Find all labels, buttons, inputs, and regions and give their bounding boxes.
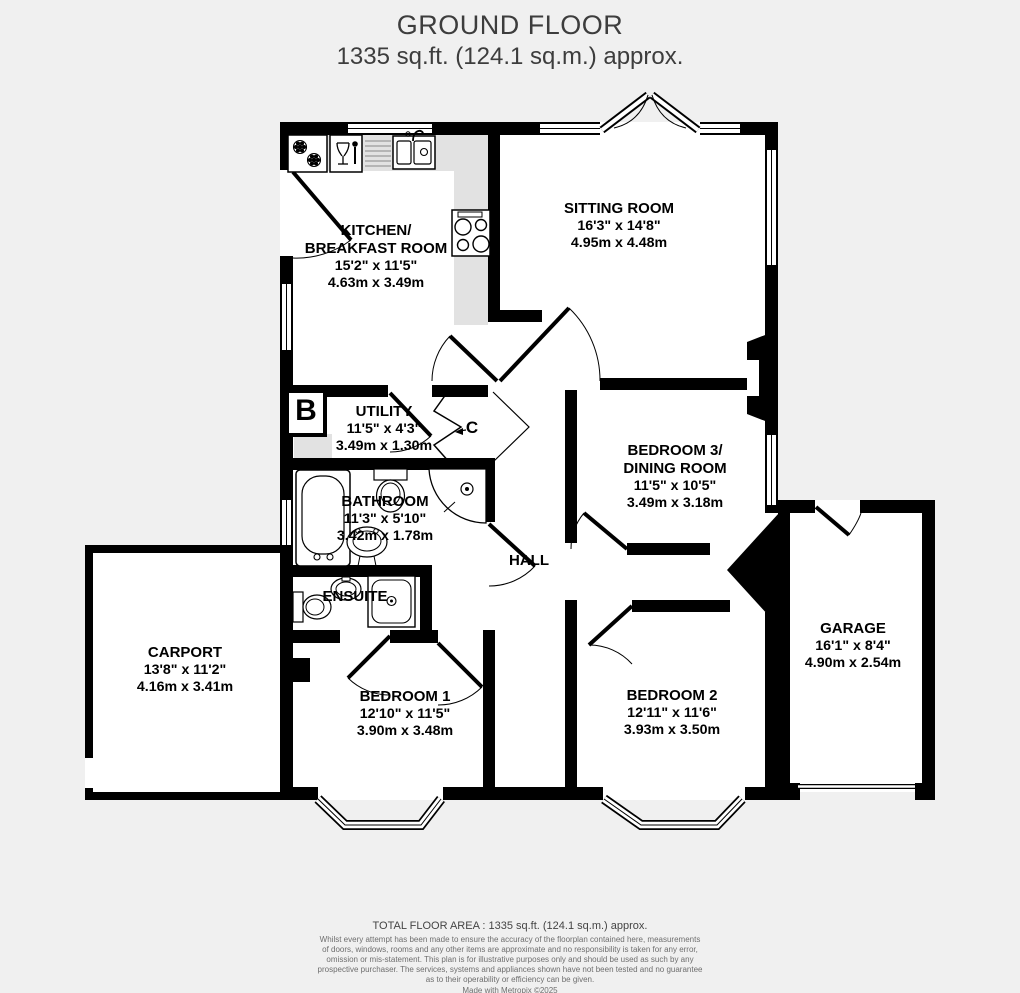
sink-icon bbox=[393, 131, 435, 169]
room-label-hall: HALL bbox=[509, 552, 549, 570]
room-label-bedroom3-dining: BEDROOM 3/ DINING ROOM 11'5" x 10'5" 3.4… bbox=[623, 442, 726, 512]
fridge-freezer-icon bbox=[288, 135, 327, 172]
bedroom2-bay-window-icon bbox=[604, 799, 742, 825]
dishwasher-icon bbox=[330, 135, 362, 172]
disclaimer-line2: of doors, windows, rooms and any other i… bbox=[0, 945, 1020, 955]
metropix-credit: Made with Metropix ©2025 bbox=[0, 985, 1020, 993]
footer-block: TOTAL FLOOR AREA : 1335 sq.ft. (124.1 sq… bbox=[0, 920, 1020, 993]
room-label-bathroom: BATHROOM 11'3" x 5'10" 3.42m x 1.78m bbox=[337, 493, 433, 545]
disclaimer-line3: omission or mis-statement. This plan is … bbox=[0, 955, 1020, 965]
room-label-carport: CARPORT 13'8" x 11'2" 4.16m x 3.41m bbox=[137, 644, 233, 696]
disclaimer-line4: prospective purchaser. The services, sys… bbox=[0, 965, 1020, 975]
room-label-bedroom2: BEDROOM 2 12'11" x 11'6" 3.93m x 3.50m bbox=[624, 687, 720, 739]
total-floor-area: TOTAL FLOOR AREA : 1335 sq.ft. (124.1 sq… bbox=[0, 920, 1020, 932]
disclaimer-line5: as to their operability or efficiency ca… bbox=[0, 975, 1020, 985]
room-label-sitting-room: SITTING ROOM 16'3" x 14'8" 4.95m x 4.48m bbox=[564, 200, 674, 252]
fireplace-icon bbox=[747, 330, 778, 426]
floorplan-page: GROUND FLOOR 1335 sq.ft. (124.1 sq.m.) a… bbox=[0, 0, 1020, 993]
room-label-bedroom1: BEDROOM 1 12'10" x 11'5" 3.90m x 3.48m bbox=[357, 688, 453, 740]
boiler-label: B bbox=[295, 394, 317, 428]
floor-footprint bbox=[85, 122, 935, 800]
room-label-ensuite: ENSUITE bbox=[322, 588, 387, 606]
floorplan-drawing bbox=[0, 0, 1020, 993]
room-label-garage: GARAGE 16'1" x 8'4" 4.90m x 2.54m bbox=[805, 620, 901, 672]
cupboard-label: C bbox=[466, 418, 478, 438]
room-label-kitchen: KITCHEN/ BREAKFAST ROOM 15'2" x 11'5" 4.… bbox=[305, 222, 448, 292]
room-label-utility: UTILITY 11'5" x 4'3" 3.49m x 1.30m bbox=[336, 403, 432, 455]
hob-icon bbox=[452, 210, 490, 256]
bedroom1-bay-window-icon bbox=[318, 799, 441, 825]
disclaimer-line1: Whilst every attempt has been made to en… bbox=[0, 935, 1020, 945]
